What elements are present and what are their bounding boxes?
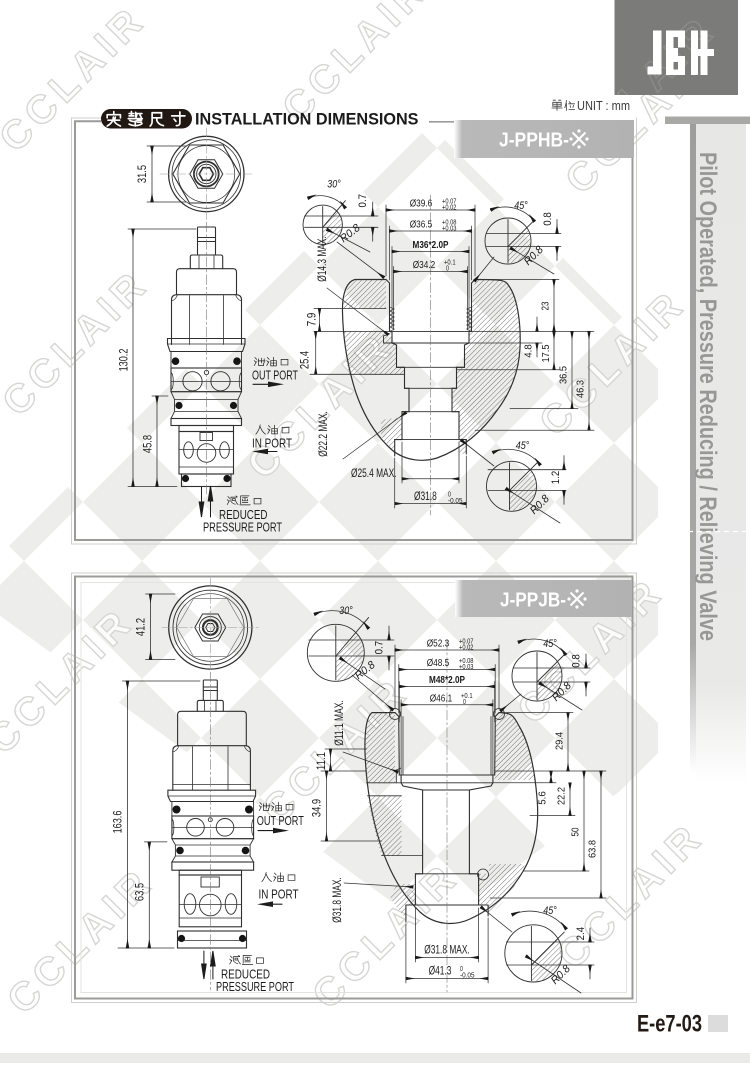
svg-text:45°: 45°: [516, 440, 530, 452]
svg-text:23: 23: [540, 301, 552, 310]
svg-text:63.5: 63.5: [134, 883, 146, 901]
svg-text:11.1: 11.1: [316, 752, 328, 770]
svg-text:130.2: 130.2: [119, 349, 131, 372]
svg-text:29.4: 29.4: [554, 732, 566, 750]
svg-text:50: 50: [570, 827, 582, 836]
svg-text:INSTALLATION DIMENSIONS: INSTALLATION DIMENSIONS: [195, 111, 419, 129]
svg-text:OUT PORT: OUT PORT: [252, 369, 298, 383]
svg-text:25.4: 25.4: [300, 350, 312, 369]
svg-text:-0.05: -0.05: [448, 496, 463, 505]
svg-text:41.2: 41.2: [136, 618, 148, 636]
svg-text:IN PORT: IN PORT: [252, 437, 292, 451]
svg-text:45°: 45°: [543, 905, 557, 917]
svg-text:Ø11.1 MAX.: Ø11.1 MAX.: [334, 700, 346, 746]
svg-text:Ø41.3: Ø41.3: [429, 966, 452, 978]
svg-text:Ø34.2: Ø34.2: [413, 259, 436, 271]
svg-text:30°: 30°: [327, 178, 341, 190]
svg-text:0.7: 0.7: [374, 641, 386, 655]
svg-text:Ø31.8: Ø31.8: [414, 491, 437, 503]
svg-text:M48*2.0P: M48*2.0P: [429, 674, 465, 686]
svg-text:163.6: 163.6: [113, 811, 125, 834]
svg-text:PRESSURE PORT: PRESSURE PORT: [216, 980, 294, 994]
svg-text:+0.03: +0.03: [442, 224, 457, 233]
svg-text:0: 0: [463, 697, 466, 706]
svg-text:45°: 45°: [543, 638, 557, 650]
svg-text:0.7: 0.7: [357, 194, 369, 208]
svg-text:Ø36.5: Ø36.5: [410, 219, 433, 231]
svg-text:30°: 30°: [339, 605, 353, 617]
svg-text:45°: 45°: [514, 200, 528, 212]
svg-text:1.2: 1.2: [550, 471, 562, 485]
svg-text:Ø31.8 MAX.: Ø31.8 MAX.: [424, 945, 470, 957]
svg-text:-0.05: -0.05: [460, 971, 475, 980]
svg-text:0.8: 0.8: [571, 654, 583, 668]
svg-text:Ø52.3: Ø52.3: [427, 638, 450, 650]
svg-text:31.5: 31.5: [137, 165, 149, 183]
svg-text:+0.02: +0.02: [442, 203, 457, 212]
svg-text:22.2: 22.2: [556, 787, 568, 805]
svg-text:5.6: 5.6: [537, 791, 549, 805]
svg-text:J-PPHB-: J-PPHB-: [499, 129, 569, 152]
svg-text:Pilot Operated, Pressure Reduc: Pilot Operated, Pressure Reducing / Reli…: [694, 152, 721, 641]
svg-text:Ø39.6: Ø39.6: [410, 198, 433, 210]
svg-text:4.8: 4.8: [523, 344, 535, 358]
svg-text:PRESSURE PORT: PRESSURE PORT: [203, 521, 282, 535]
svg-text:34.9: 34.9: [312, 799, 324, 817]
svg-text:M36*2.0P: M36*2.0P: [413, 239, 449, 251]
svg-text:46.3: 46.3: [575, 380, 587, 398]
svg-text:2.4: 2.4: [575, 927, 587, 941]
svg-text:0.8: 0.8: [542, 212, 554, 226]
svg-text:UNIT : mm: UNIT : mm: [577, 98, 630, 113]
svg-text:17.5: 17.5: [540, 344, 552, 362]
svg-text:Ø25.4 MAX.: Ø25.4 MAX.: [351, 468, 397, 480]
svg-text:45.8: 45.8: [143, 435, 155, 453]
svg-text:Ø22.2 MAX.: Ø22.2 MAX.: [318, 411, 330, 457]
svg-text:63.8: 63.8: [587, 840, 599, 858]
svg-text:+0.02: +0.02: [459, 643, 474, 652]
svg-text:7.9: 7.9: [307, 313, 319, 327]
svg-text:+0.03: +0.03: [459, 662, 474, 671]
svg-text:Ø46.1: Ø46.1: [430, 692, 453, 704]
svg-text:E-e7-03: E-e7-03: [637, 1011, 702, 1038]
svg-text:OUT PORT: OUT PORT: [257, 814, 304, 828]
svg-text:IN PORT: IN PORT: [259, 888, 299, 902]
svg-text:J-PPJB-: J-PPJB-: [500, 589, 566, 612]
svg-text:0: 0: [446, 264, 449, 273]
svg-text:Ø48.5: Ø48.5: [427, 657, 450, 669]
svg-text:36.5: 36.5: [558, 366, 570, 384]
svg-text:Ø31.8 MAX.: Ø31.8 MAX.: [332, 877, 344, 923]
